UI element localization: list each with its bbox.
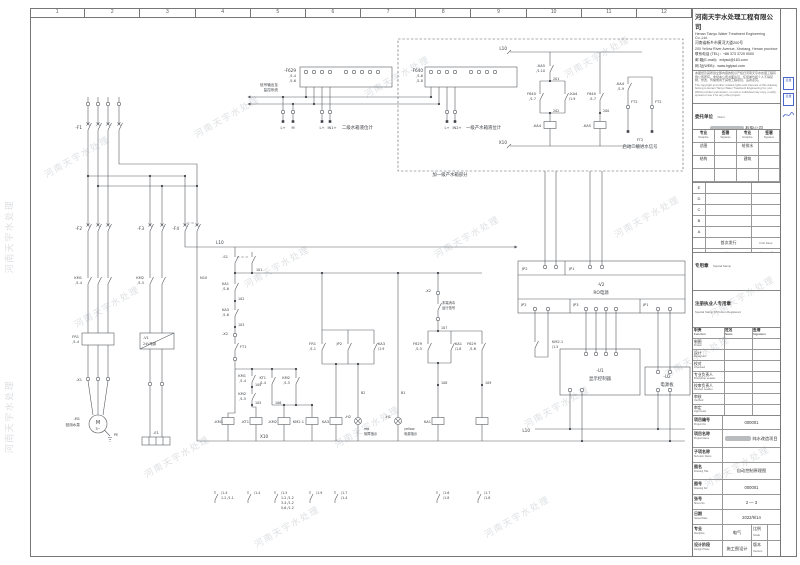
footer-fields: 项目编号Project No.000001 项目名称Project Name纯水… (693, 416, 780, 556)
power-section: -F1 -F2 -F3 -F4 KM1 /1.4 KM2 /1.5 FR1 /1… (66, 97, 213, 445)
wire-number: B1 (401, 391, 405, 395)
ruler-number: 7 (361, 8, 416, 17)
terminal-tag: -X2 (425, 289, 431, 293)
connector-tag: JP1 (568, 267, 575, 271)
coil-tag: KA1 (424, 420, 431, 424)
xref: 1-2 /1.2 (281, 496, 294, 500)
ruler-number: 9 (471, 8, 526, 17)
ruler-number: 2 (85, 8, 140, 17)
wire-tag: L10 (522, 428, 530, 433)
wire-tag: L10 (499, 46, 507, 51)
rev-letter: D (693, 194, 706, 204)
first-issue-en: First Issue (752, 238, 780, 248)
xref: /1.5 (281, 491, 287, 495)
company-address-en: 200 Yellow River Avenue, Xinxiang, Henan… (695, 47, 778, 51)
disc-cell: 总图 (693, 143, 715, 156)
redaction-blob (725, 436, 751, 441)
coil-tag: -KM2 (268, 420, 277, 424)
node-number: 202 (553, 109, 559, 113)
coil-tag: -KM1 (214, 420, 223, 424)
disclaimer: 本图纸及其所载全部内容的知识产权归河南天宇水处理工程有限公司所有，未经本公司书面… (693, 71, 780, 104)
relay-coils (544, 122, 606, 129)
sig-role: 校审负责人Review Leader (693, 383, 725, 393)
sch-label: F629 (467, 342, 477, 346)
added-tank-ladder: L10 X10 -KA5 /1.10 201 F640 /1.7 -KA4 /1… (499, 46, 662, 150)
sch-label: F629 (413, 342, 423, 346)
module-tag: -F640 (411, 68, 423, 73)
breaker-tag: -F1 (75, 125, 82, 130)
first-issue: 首次发行 (706, 238, 752, 248)
contactor-contacts (88, 273, 166, 289)
signal-note: 运行信号 (442, 305, 456, 310)
field-label: 设计阶段Design Phase (693, 541, 723, 556)
col-header: 签署Signature (759, 130, 780, 143)
junction-dots (87, 175, 198, 187)
field-label: 子项名称Sub-item Name (693, 448, 723, 462)
schematic-canvas: 加一级产水箱部分 -F (30, 17, 692, 556)
rev-letter: B (693, 216, 706, 226)
sig-role: 校对Checked (693, 361, 725, 371)
disc-cell (715, 169, 737, 182)
client-label: 委托单位 (695, 114, 713, 119)
thermal-relay-box (82, 333, 114, 345)
field-label: 张号Sheet No. (693, 495, 723, 509)
sch-label: FT2 (637, 138, 644, 142)
disc-cell: 给排水 (737, 143, 759, 156)
device-name: 电源板 (660, 381, 674, 388)
sch-label: L+ (444, 126, 449, 130)
wire-tag: N10 (200, 276, 208, 280)
sch-label: /1.5 (240, 397, 246, 401)
company-address: 河南省新乡市黄河大道200号 (695, 41, 778, 46)
sheet-number: 2 — 3 (723, 500, 780, 505)
sch-label: KM2 (282, 376, 290, 380)
sch-label: /1.8 (417, 79, 423, 83)
node-number: 103 (238, 323, 244, 327)
xref: /1.7 (484, 491, 490, 495)
psu-tag: -V1 (143, 336, 149, 340)
sch-label: FT2 (631, 100, 638, 104)
connector-tag: JP2 (520, 303, 527, 307)
drawing-sheet: 河南天宇水处理 河南天宇水处理 河南天宇水处理 河南天宇水处理 河南天宇水处理 … (0, 0, 800, 565)
io-module-section: -F629 /1.4 /1.6 -F640 /1.6 /1.8 信号输出至 监控… (248, 67, 517, 131)
company-tel: 联系电话 (TEL)：+86 373 3720 0000 (695, 52, 778, 57)
xref: /1.7 (341, 491, 347, 495)
digital-stamp: 签章 (783, 77, 794, 90)
sch-label: /1.4 (260, 381, 266, 385)
sch-label: /1.6 (417, 74, 423, 78)
special-stamp-area: 专用章 Special Stamp (693, 253, 780, 290)
ft2-terminal (650, 105, 653, 108)
disc-cell (759, 156, 780, 169)
sch-label: L+ (319, 126, 324, 130)
sch-label: /1.4 (290, 74, 296, 78)
field-label: 版本Version (751, 541, 768, 556)
plc-section: JP2 JP1 -V2 RO电源 JP2 JP3 JP1 KM2.1 /1.5 … (518, 171, 690, 441)
sch-label: /1.7 (590, 97, 596, 101)
field-label: 日期Issued Date (693, 510, 723, 524)
col-header: 专业Discipline (693, 130, 715, 143)
sensor-name: 一级产水箱液位计 (466, 124, 502, 131)
control-section: L10 X10 L10 -S1 101 KA1 /1.6 102 KA3 /1.… (213, 240, 685, 442)
sensor-terminals (281, 110, 456, 122)
company-email: 邮 箱(E-mail)：xxtyscl@163.com (695, 58, 778, 63)
ruler-number: 6 (306, 8, 361, 17)
sch-label: L+ (280, 126, 285, 130)
signature-table: 职责Function 姓名Name 签署Signature 制图Drawn 设计… (693, 328, 780, 416)
element-tag: -E1 (153, 431, 159, 435)
sch-label: KA1 (222, 282, 229, 286)
sch-label: JP2 (335, 342, 342, 346)
client-label-en: Client (717, 115, 724, 119)
disc-cell: 结构 (693, 156, 715, 169)
wire-number: B2 (361, 391, 365, 395)
xref: /1.6 (443, 491, 449, 495)
reg-stamp-label-en: Special Stamp Of Person Registered (695, 310, 778, 314)
xref: 1-2 /1.1 (221, 496, 234, 500)
sch-label: -KA4 (569, 92, 578, 96)
lamp-note: 故障指示 (364, 431, 378, 436)
wire-tag: L10 (216, 240, 224, 245)
col-header: 专业Discipline (737, 130, 759, 143)
sch-label: -KA4 (616, 82, 625, 86)
sig-header: 签署Signature (753, 328, 780, 338)
coil-tag: -KT1 (241, 420, 249, 424)
pe-label: PE (114, 433, 118, 437)
company-info: 河南天宇水处理工程有限公司 Henan Tianyu Water Treatme… (693, 8, 780, 71)
sch-label: /1.9 (378, 347, 384, 351)
rev-letter: E (693, 183, 706, 193)
discipline-table: 专业Discipline 签署Signature 专业Discipline 签署… (693, 130, 780, 183)
issue-date: 2022/9/14 (723, 515, 780, 520)
motor-tag: -M1 (73, 417, 80, 421)
float-switch-tag: FT1 (240, 345, 247, 349)
breaker-tag: -F2 (75, 226, 82, 231)
sch-label: /1.6 (223, 313, 229, 317)
revision-table: E D C B A 首次发行 First Issue 版次Rev. 描述Desc… (693, 183, 780, 254)
coil-tag: -KA5 (583, 124, 591, 128)
signal-note: 末端消毒 (442, 300, 456, 305)
wire-tag: X10 (499, 140, 508, 145)
design-phase-value: 施工图设计 (723, 546, 751, 552)
drawing-title: 自动控制原理图 (723, 468, 780, 474)
sch-label: KM2 (238, 392, 246, 396)
sig-role: 专业负责人Discipline Leader (693, 372, 725, 382)
sch-label: F640 (587, 92, 597, 96)
sig-header: 姓名Name (725, 328, 753, 338)
thermal-tag: FR1 (72, 335, 79, 339)
watermark: 河南天宇水处理 (2, 200, 15, 274)
monitor-note: 监控系统 (264, 87, 279, 92)
disc-cell (737, 169, 759, 182)
indicator-lamps (355, 418, 402, 425)
xref: /1.9 (316, 491, 322, 495)
breaker-symbols (87, 119, 201, 236)
sch-label: /1.5 (284, 381, 290, 385)
sig-role: 审核Verified (693, 394, 725, 404)
relay-coils (222, 418, 488, 425)
monitor-note: 信号输出至 (260, 82, 278, 87)
field-label: 专业Discipline (693, 525, 723, 540)
wire-tag: X10 (260, 434, 269, 439)
terminal-tag: -X2 (222, 332, 228, 336)
sch-label: /1.9 (618, 87, 624, 91)
sch-label: /1.4 (73, 340, 79, 344)
sch-label: /1.10 (537, 69, 545, 73)
sch-label: /1.5 (138, 281, 144, 285)
dashed-region-label: 加一级产水箱部分 (432, 171, 468, 178)
sch-label: KA3 (222, 308, 229, 312)
node-number: 101 (256, 268, 262, 272)
ft2-terminal (626, 105, 629, 108)
coil-tag: KA3 (322, 420, 329, 424)
switch-tag: -S1 (222, 255, 228, 259)
disc-cell: 建筑 (737, 156, 759, 169)
contactor-tag: KM1 (74, 276, 82, 280)
breaker-tag: -F4 (172, 226, 179, 231)
km21-contact (535, 337, 539, 353)
sig-role: 审定Approved (693, 405, 725, 415)
field-label: 项目名称Project Name (693, 430, 723, 447)
contactor-tag: KM2 (136, 276, 144, 280)
project-number: 000001 (723, 420, 780, 425)
io-terminals (304, 70, 496, 73)
lamp-note: 电源指示 (404, 431, 418, 436)
stamp-label-en: Special Stamp (713, 264, 731, 268)
sch-label: /1.9 (569, 97, 575, 101)
coil-tag: -KA4 (533, 124, 542, 128)
company-name-en: Henan Tianyu Water Treatment Engineering… (695, 32, 778, 40)
sch-label: /1.5 (416, 347, 422, 351)
sch-label: /1.7 (530, 97, 536, 101)
reg-stamp-label: 注册执业人专用章 (695, 301, 731, 306)
sch-label: KM1 (238, 374, 246, 378)
ruler-number: 1 (30, 8, 85, 17)
discipline-value: 电气 (723, 530, 751, 536)
signature-squiggle (782, 109, 795, 121)
xref: /1.8 (443, 496, 449, 500)
field-label: 比例Scale (751, 525, 768, 540)
xref: /1.8 (484, 496, 490, 500)
sch-label: /1.6 (470, 347, 476, 351)
device-name: RO电源 (593, 289, 609, 296)
device-tag: -U1 (596, 368, 604, 373)
ruler-number: 5 (251, 8, 306, 17)
contact-cross-reference-legend: /1.4 1-2 /1.1 /1.4 /1.5 1-2 /1.2 3-4 /1.… (215, 491, 490, 510)
watermark: 河南天宇水处理 (2, 380, 15, 454)
sch-label: /1.5 (552, 345, 558, 349)
project-name: 纯水改造项目 (723, 436, 780, 442)
lamp-tag: -H1 (385, 415, 391, 419)
connector-tag: JP2 (521, 267, 528, 271)
sch-label: KA1 (455, 342, 462, 346)
sch-label: F640 (527, 92, 537, 96)
sch-label: KM2.1 (552, 340, 563, 344)
ruler-number: 12 (637, 8, 692, 17)
contact-symbols (235, 252, 486, 405)
col-header: 签署Signature (715, 130, 737, 143)
sensor-name: 二级水箱液位计 (342, 124, 373, 131)
xref: /1.4 (254, 491, 260, 495)
node-number: 201 (553, 77, 559, 81)
node-number: 200 (603, 109, 609, 113)
company-web: 网 址(WEB)：www.hgtyscl.com (695, 64, 778, 69)
x2-terminals (233, 291, 439, 360)
lamp-color: yellow (404, 427, 415, 431)
sig-header: 职责Function (693, 328, 725, 338)
device-tag: -V2 (598, 282, 605, 287)
client-section: 委托单位 Client 有限公司 (693, 104, 780, 130)
junction-dots (234, 272, 671, 442)
device-tag: -U2 (663, 374, 671, 379)
disclaimer-en: The copyright and other related rights a… (695, 84, 778, 97)
sch-label: /1.6 (290, 79, 296, 83)
disc-cell (759, 169, 780, 182)
field-label: 图号Drawing No. (693, 480, 723, 494)
sch-label: /1.1 (310, 347, 316, 351)
motor-name: 回用水泵 (66, 422, 81, 427)
signal-note: 启动二级进水信号 (622, 143, 658, 150)
sch-label: M (291, 126, 294, 130)
sch-label: FR1 (309, 342, 316, 346)
motor-phase: 3~ (95, 427, 100, 431)
sch-label: /1.6 (223, 287, 229, 291)
xref: /1.4 (221, 491, 227, 495)
ruler-number: 4 (196, 8, 251, 17)
node-number: 102 (238, 297, 244, 301)
xref: 3-4 /1.2 (281, 501, 294, 505)
sch-label: IN1+ (327, 126, 336, 130)
xref: /1.4 (341, 496, 347, 500)
disc-cell (693, 169, 715, 182)
module-tag: -F629 (284, 68, 296, 73)
node-number: 109 (485, 381, 491, 385)
digital-stamp: 签章 (783, 93, 794, 106)
sch-label: /1.4 (240, 379, 246, 383)
company-name: 河南天宇水处理工程有限公司 (695, 11, 778, 31)
sch-label: /1.4 (76, 281, 82, 285)
breaker-tag: -F3 (137, 226, 144, 231)
connector-tag: JP1 (642, 303, 649, 307)
title-block: 河南天宇水处理工程有限公司 Henan Tianyu Water Treatme… (692, 8, 780, 556)
stamp-label: 专用章 (695, 263, 709, 268)
coil-tag: KM2.1 (293, 420, 304, 424)
sch-label: -KA5 (537, 64, 545, 68)
sch-label: KA3 (378, 342, 385, 346)
node-number: 107 (441, 326, 447, 330)
sch-label: FT2 (655, 100, 662, 104)
sig-role: 制图Drawn (693, 339, 725, 349)
lamp-color: red (364, 427, 369, 431)
sig-role: 设计Designed (693, 350, 725, 360)
ruler-number: 10 (527, 8, 582, 17)
added-tank-dashed-region: 加一级产水箱部分 (398, 39, 683, 178)
node-number: 105 (255, 401, 261, 405)
sch-label: IN2+ (452, 126, 461, 130)
ruler-number: 3 (140, 8, 195, 17)
disc-cell (759, 143, 780, 156)
disc-cell (715, 143, 737, 156)
ruler-number: 8 (416, 8, 471, 17)
xref: 5-6 /1.2 (281, 506, 294, 510)
node-number: 108 (441, 381, 447, 385)
disc-cell (715, 156, 737, 169)
psu-name: 24V电源 (143, 341, 157, 346)
ruler-number: 11 (582, 8, 637, 17)
connector-tag: JP3 (572, 303, 579, 307)
motor-letter: M (96, 420, 100, 426)
rev-letter: A (693, 227, 706, 237)
drawing-number: 000001 (723, 485, 780, 490)
field-label: 项目编号Project No. (693, 416, 723, 429)
sch-label: /1.8 (455, 347, 461, 351)
node-number: 106 (275, 401, 281, 405)
sch-label: KT1 (259, 376, 266, 380)
right-margin-strip: 签章 签章 (780, 8, 796, 556)
field-label: 图名Drawing Title (693, 463, 723, 479)
registered-stamp-area: 注册执业人专用章 Special Stamp Of Person Registe… (693, 291, 780, 328)
terminal-tag: -X1 (76, 378, 82, 382)
disclaimer-cn: 本图纸及其所载全部内容的知识产权归河南天宇水处理工程有限公司所有，未经本公司书面… (695, 72, 778, 83)
power-board-box (645, 367, 690, 395)
lamp-tag: -H2 (345, 415, 351, 419)
device-name: 显示控制器 (589, 375, 612, 382)
rev-letter: C (693, 205, 706, 215)
